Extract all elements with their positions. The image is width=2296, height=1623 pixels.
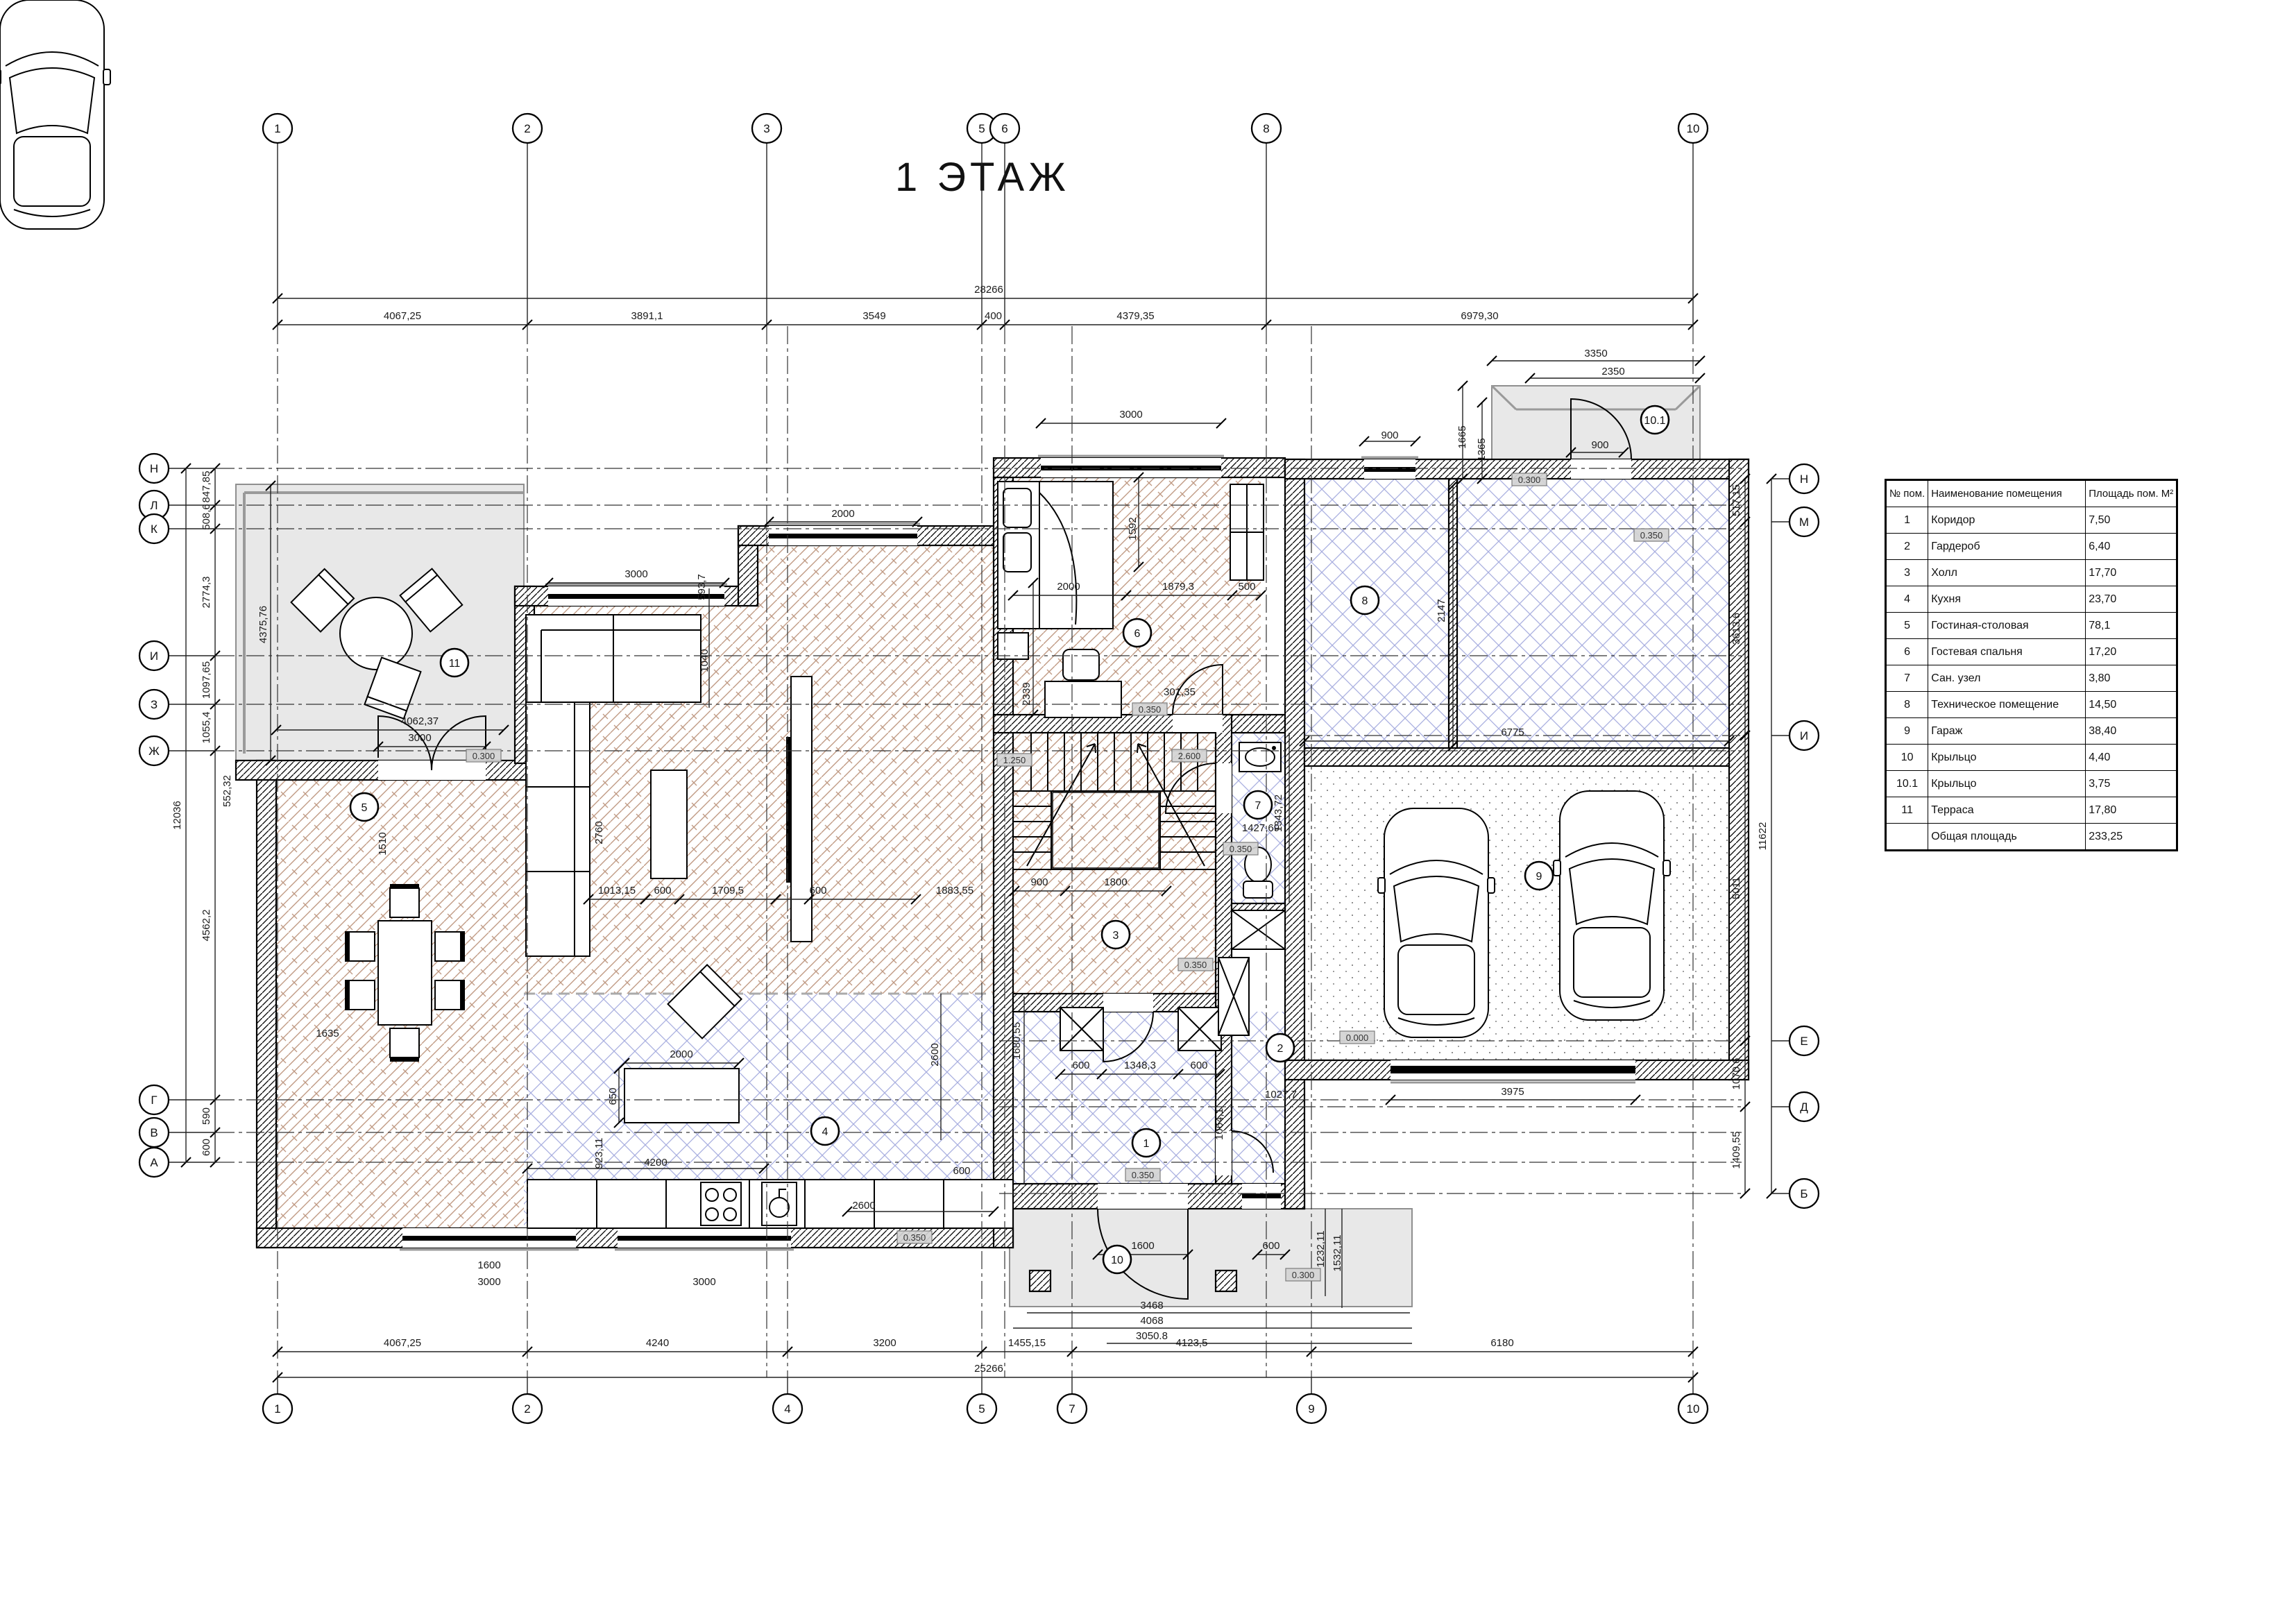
axis-bubble-label: И <box>150 649 158 663</box>
dim-label: 600 <box>953 1165 970 1177</box>
dim-label: 3000 <box>624 568 647 580</box>
window-living-bottom <box>400 1228 579 1250</box>
dim-label: 1055,4 <box>201 712 212 744</box>
dim-label: 3613,6 <box>1730 613 1742 645</box>
dim-label: 600 <box>1190 1060 1207 1071</box>
axis-bubble-label: 3 <box>763 122 769 135</box>
garage-door-opening <box>1391 1060 1635 1082</box>
axis-bubble-label: 5 <box>978 1402 985 1416</box>
dim-label: 900 <box>1030 876 1048 888</box>
dim-label: 517,15 <box>1730 484 1742 516</box>
axis-bubble-label: З <box>151 698 158 711</box>
dim-label: 650 <box>607 1087 619 1105</box>
dim-label: 4240 <box>646 1337 669 1349</box>
dim-label: 2147 <box>1436 599 1447 622</box>
room-marker-label: 8 <box>1362 595 1368 607</box>
axis-bubble-label: Г <box>151 1094 157 1107</box>
dim-label: 4067,25 <box>384 1337 421 1349</box>
dim-label: 301,35 <box>1164 686 1196 698</box>
dim-label: 1097,65 <box>201 661 212 699</box>
axis-bubble-label: 10 <box>1687 1402 1700 1416</box>
dim-label: 3200 <box>873 1337 896 1349</box>
dim-label: 4123,5 <box>1176 1337 1208 1349</box>
axis-bubble-label: 2 <box>524 1402 530 1416</box>
dim-label: 1348,3 <box>1124 1060 1156 1071</box>
axis-bubble-label: Д <box>1800 1101 1808 1114</box>
dim-label: 2760 <box>593 821 605 844</box>
kitchen-island <box>624 1069 739 1123</box>
window-bedroom-3000 <box>1038 456 1224 477</box>
stove-icon <box>701 1182 741 1225</box>
dim-label: 3549 <box>862 310 885 322</box>
dim-label: 4067,25 <box>384 310 421 322</box>
level-tag: 0.350 <box>1184 960 1207 970</box>
dim-label: 593,7 <box>696 574 708 600</box>
level-tag: 0.300 <box>1518 475 1541 485</box>
dim-label: 3000 <box>477 1276 500 1288</box>
dim-label: 5011 <box>1730 877 1742 899</box>
level-tag: 0.350 <box>1230 844 1252 854</box>
room-marker-label: 7 <box>1255 800 1261 812</box>
room-marker-label: 10 <box>1111 1255 1123 1266</box>
axis-bubble-label: Н <box>150 462 158 475</box>
dim-label: 600 <box>654 885 671 897</box>
dim-label: 3350 <box>1584 348 1607 359</box>
dim-label: 1064,1 <box>1214 1108 1225 1140</box>
level-tag: 0.000 <box>1346 1033 1369 1043</box>
axis-bubble-label: К <box>151 522 158 536</box>
dim-label: 25266 <box>974 1363 1003 1375</box>
dim-label: 1600 <box>477 1259 500 1271</box>
axis-bubble-label: 5 <box>978 122 985 135</box>
dim-label: 1680,55 <box>1011 1022 1023 1060</box>
level-tag: 0.350 <box>1139 704 1162 715</box>
room-marker-label: 1 <box>1143 1138 1150 1150</box>
axis-bubble-label: 9 <box>1308 1402 1314 1416</box>
dim-label: 1883,55 <box>936 885 973 897</box>
dim-label: 4375,76 <box>257 606 269 643</box>
dim-label: 600 <box>1072 1060 1089 1071</box>
room-marker-label: 2 <box>1277 1043 1284 1055</box>
dim-label: 6979,30 <box>1461 310 1498 322</box>
dim-label: 600 <box>1262 1240 1279 1252</box>
axis-bubble-label: 4 <box>784 1402 790 1416</box>
dim-label: 12036 <box>171 801 183 830</box>
dim-label: 1592 <box>1127 517 1139 540</box>
dim-label: 400 <box>985 310 1002 322</box>
axis-bubble-label: 6 <box>1001 122 1007 135</box>
dim-label: 2000 <box>831 508 854 520</box>
level-tag: 0.300 <box>1292 1270 1315 1280</box>
dim-label: 4379,35 <box>1116 310 1154 322</box>
room-marker-label: 4 <box>822 1126 828 1138</box>
dim-label: 1232,11 <box>1315 1230 1327 1267</box>
dim-label: 1600 <box>1131 1240 1154 1252</box>
axis-bubble-label: 8 <box>1263 122 1269 135</box>
porch-floor <box>1010 1209 1412 1307</box>
axis-bubble-label: М <box>1799 516 1809 529</box>
dim-label: 1800 <box>1104 876 1127 888</box>
dim-label: 4068 <box>1140 1315 1163 1327</box>
dim-label: 2339 <box>1021 682 1032 705</box>
coffee-table <box>651 770 687 878</box>
window-porch-600 <box>1242 1184 1281 1209</box>
dim-label: 4562,2 <box>201 910 212 942</box>
dim-label: 4062,37 <box>401 715 439 727</box>
dim-label: 600 <box>201 1139 212 1156</box>
dim-label: 1665 <box>1456 425 1468 448</box>
dim-label: 2774,3 <box>201 577 212 609</box>
dim-label: 3050.8 <box>1136 1330 1168 1342</box>
dim-label: 4200 <box>644 1157 667 1169</box>
level-tag: 2.600 <box>1178 751 1201 761</box>
level-tag: 0.350 <box>1132 1170 1155 1180</box>
kitchen-counter <box>527 1180 1013 1228</box>
dim-label: 3975 <box>1501 1086 1524 1098</box>
window-living-2000 <box>766 524 920 545</box>
dim-label: 900 <box>1381 430 1398 441</box>
dim-label: 590 <box>201 1107 212 1125</box>
axis-bubble-label: Ж <box>148 745 160 758</box>
dim-label: 3891,1 <box>631 310 663 322</box>
dim-label: 923,11 <box>593 1138 605 1169</box>
dim-label: 2600 <box>929 1043 941 1066</box>
dim-label: 1635 <box>316 1028 339 1039</box>
dim-label: 1510 <box>377 832 389 855</box>
axis-bubble-label: 2 <box>524 122 530 135</box>
dim-label: 552,32 <box>221 775 233 807</box>
garage-floor <box>1304 766 1729 1060</box>
dim-label: 6775 <box>1501 726 1524 738</box>
axis-bubble-label: 1 <box>274 122 280 135</box>
axis-bubble-label: Б <box>1800 1187 1808 1200</box>
dim-label: 3468 <box>1140 1300 1163 1311</box>
dim-label: 900 <box>1591 439 1608 451</box>
dim-label: 3000 <box>1119 409 1142 420</box>
dim-label: 1027,7 <box>1265 1089 1297 1101</box>
dim-label: 2000 <box>670 1048 692 1060</box>
axis-bubble-label: 7 <box>1069 1402 1075 1416</box>
dim-label: 1070,6 <box>1730 1058 1742 1090</box>
dim-label: 500 <box>1238 581 1255 593</box>
dim-label: 508,6 <box>201 504 212 530</box>
car-icon <box>0 0 110 229</box>
room-marker-label: 9 <box>1536 871 1542 883</box>
bed <box>998 482 1113 629</box>
room-marker-label: 6 <box>1134 628 1141 640</box>
level-tag: 1.250 <box>1003 755 1026 765</box>
axis-bubble-label: И <box>1800 729 1808 742</box>
dim-label: 28266 <box>974 284 1003 296</box>
room-marker-label: 5 <box>362 802 368 814</box>
dim-label: 1409,55 <box>1730 1131 1742 1169</box>
floor-plan-sheet: { "title": "1 ЭТАЖ", "legend_table": { "… <box>0 0 2296 1623</box>
dim-label: 3000 <box>408 732 431 744</box>
dim-label: 2600 <box>852 1200 875 1212</box>
axis-bubble-label: Н <box>1800 473 1808 486</box>
level-tag: 0.350 <box>903 1232 926 1243</box>
porch-column <box>1030 1271 1051 1291</box>
dim-label: 6180 <box>1490 1337 1513 1349</box>
axis-bubble-label: В <box>150 1126 158 1139</box>
axis-bubble-label: 1 <box>274 1402 280 1416</box>
axis-bubble-label: 10 <box>1687 122 1700 135</box>
bath-sink <box>1239 742 1281 772</box>
dim-label: 1365 <box>1476 438 1488 461</box>
dim-label: 1455,15 <box>1008 1337 1046 1349</box>
dim-label: 1879,3 <box>1162 581 1194 593</box>
level-tag: 0.350 <box>1640 530 1663 541</box>
room-marker-label: 11 <box>449 658 461 670</box>
porch-column <box>1216 1271 1236 1291</box>
axis-bubble-label: Л <box>150 499 158 512</box>
dim-label: 600 <box>809 885 826 897</box>
dim-label: 2000 <box>1057 581 1080 593</box>
bedside-table <box>998 633 1028 659</box>
dim-label: 11622 <box>1757 822 1769 851</box>
axis-bubble-label: Е <box>1800 1035 1808 1048</box>
floor-plan-drawing: 4067,253891,135494004379,356979,30282664… <box>0 0 2296 1623</box>
dim-label: 1532,11 <box>1332 1234 1343 1271</box>
dim-label: 847,85 <box>201 471 212 503</box>
axis-bubble-label: А <box>150 1156 158 1169</box>
room-marker-label: 3 <box>1113 930 1119 942</box>
bedroom-wardrobe <box>1230 484 1264 580</box>
room-marker-label: 10.1 <box>1644 415 1665 427</box>
dim-label: 1709,5 <box>712 885 744 897</box>
floor-fills <box>236 386 1729 1307</box>
level-tag: 0.300 <box>473 751 495 761</box>
dim-label: 1040 <box>699 649 711 672</box>
dim-label: 2350 <box>1601 366 1624 377</box>
dim-label: 3000 <box>692 1276 715 1288</box>
dim-label: 1013,15 <box>598 885 636 897</box>
dim-label: 1343,72 <box>1273 794 1284 832</box>
